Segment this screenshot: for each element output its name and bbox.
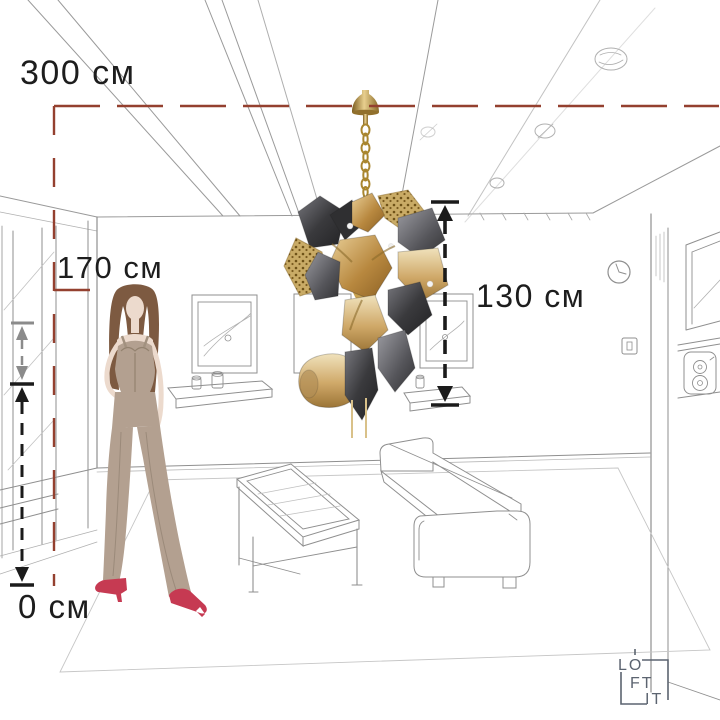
chandelier-chain <box>362 125 370 198</box>
ceiling-height-label: 300 см <box>20 56 136 90</box>
clear-crystal <box>347 223 353 229</box>
smoke-drop-crystal <box>378 330 415 392</box>
wall-clock-icon <box>608 261 630 283</box>
logo-text-lo: LO <box>618 657 643 674</box>
smoke-drop-crystal <box>345 348 378 420</box>
clear-crystal <box>427 281 433 287</box>
mirror-sketch <box>192 295 257 373</box>
arrowhead-down-icon <box>15 567 29 582</box>
logo-text-it: IT <box>645 691 663 708</box>
arrowhead-up-icon <box>16 326 28 340</box>
chandelier-illustration <box>284 90 448 438</box>
speaker-icon <box>684 352 716 394</box>
arrowhead-up-icon <box>437 205 453 221</box>
logo-text-ft: FT <box>630 675 654 692</box>
person-height-label: 170 см <box>57 252 163 283</box>
arrowhead-down-icon <box>16 366 28 380</box>
room-sketch-canvas: LO FT IT <box>0 0 720 720</box>
coffee-table-sketch <box>237 464 362 592</box>
person-trousers <box>103 392 191 597</box>
light-switch-icon <box>622 338 637 354</box>
loftit-logo: LO FT IT <box>618 649 668 708</box>
vanity-shelf-sketch <box>168 372 272 408</box>
person-height-arrow <box>10 323 34 585</box>
fixture-height-label: 130 см <box>476 280 585 312</box>
person-shoe-left <box>95 578 127 602</box>
person-face <box>126 296 144 320</box>
product-dimensions-illustration: LO FT IT 300 см 170 см 130 см 0 см <box>0 0 720 720</box>
horn-opening <box>300 370 318 398</box>
recessed-light-icon <box>595 48 627 70</box>
arrowhead-up-icon <box>15 387 29 402</box>
chandelier-canopy <box>352 90 379 112</box>
sofa-sketch <box>380 438 530 588</box>
person-neck <box>131 317 139 333</box>
person-shoe-right <box>169 589 207 617</box>
right-wall-sketch <box>608 214 720 700</box>
doorway-sketch <box>668 232 720 700</box>
crystal-cluster <box>284 190 448 438</box>
chandelier-stem <box>363 114 368 125</box>
floor-level-label: 0 см <box>18 590 91 623</box>
person-illustration <box>95 284 207 617</box>
recessed-lights-sketch <box>420 48 627 188</box>
